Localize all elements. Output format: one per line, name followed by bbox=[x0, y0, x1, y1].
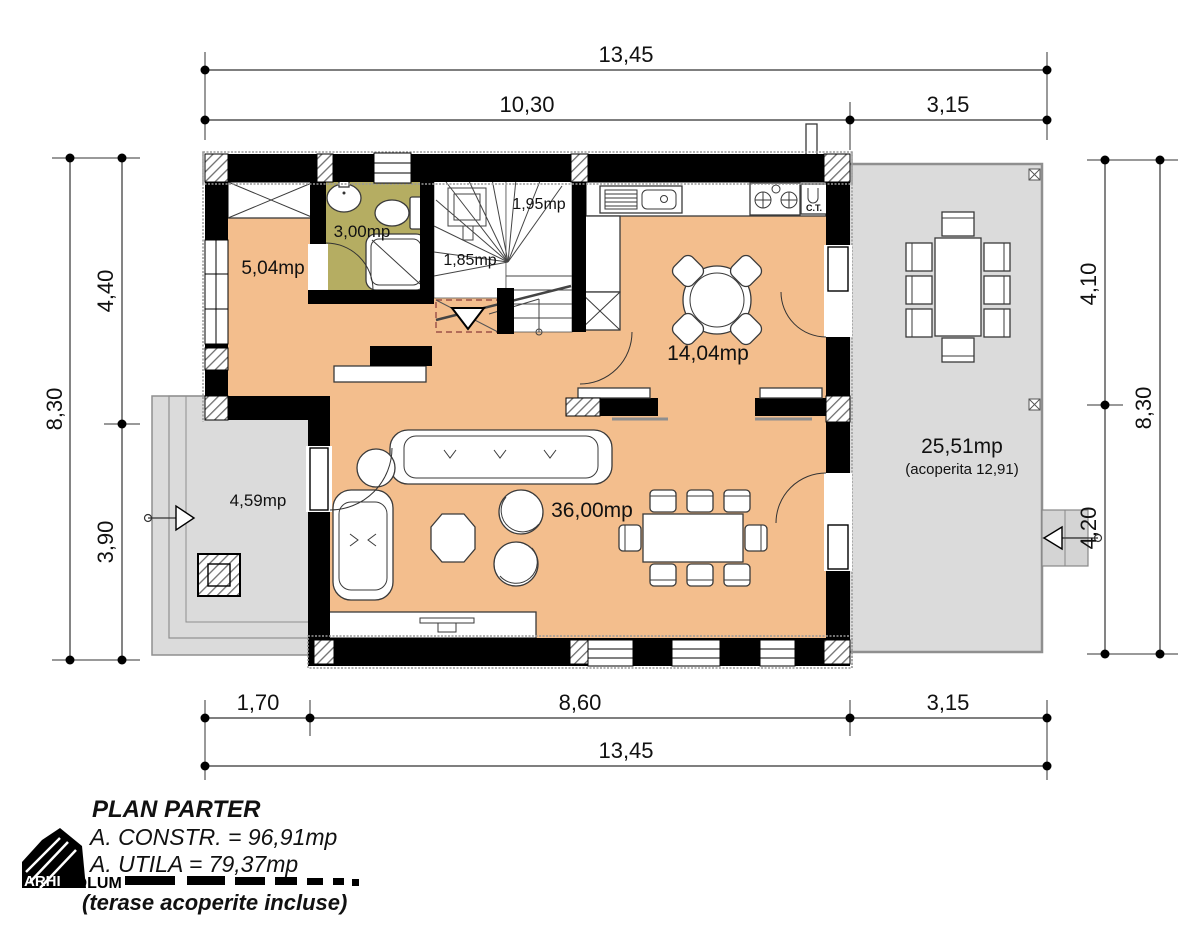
dim-left-upper: 4,40 bbox=[93, 270, 118, 313]
wall-top bbox=[205, 154, 850, 182]
armchair bbox=[494, 542, 538, 586]
bathroom-area-label: 3,00mp bbox=[334, 222, 391, 241]
window-bathroom-top bbox=[374, 153, 411, 183]
wall-bath-stairs bbox=[420, 178, 434, 290]
kitchen-area-label: 14,04mp bbox=[667, 342, 749, 365]
wall-bath-bottom bbox=[308, 290, 434, 304]
corner-marker-icon bbox=[1029, 169, 1040, 180]
dim-top-main: 10,30 bbox=[499, 92, 554, 117]
dimensions-bottom: 1,70 8,60 3,15 13,45 bbox=[201, 690, 1052, 780]
dim-bottom-right: 3,15 bbox=[927, 690, 970, 715]
terrace-right-note-label: (acoperita 12,91) bbox=[905, 461, 1018, 478]
hall-area-label: 5,04mp bbox=[241, 258, 304, 279]
terrace-legend-dashes bbox=[125, 876, 359, 886]
dimensions-right: 4,10 4,20 8,30 bbox=[1076, 156, 1178, 659]
dim-right-total: 8,30 bbox=[1131, 387, 1156, 430]
dim-right-upper: 4,10 bbox=[1076, 263, 1101, 306]
dimensions-top: 13,45 10,30 3,15 bbox=[201, 42, 1052, 150]
window-hall-left bbox=[205, 240, 228, 344]
dim-bottom-total: 13,45 bbox=[598, 738, 653, 763]
stair-lower-area-label: 1,85mp bbox=[443, 252, 496, 269]
wall-stairs-kitchen bbox=[572, 178, 586, 332]
window-living-bottom bbox=[588, 640, 633, 666]
sofa-large bbox=[390, 430, 612, 484]
dim-top-total: 13,45 bbox=[598, 42, 653, 67]
stove-icon bbox=[750, 183, 800, 215]
corner-marker-icon bbox=[1029, 399, 1040, 410]
terrace-right-area-label: 25,51mp bbox=[921, 435, 1003, 458]
terrace-right-slab bbox=[848, 164, 1042, 652]
built-area-text: A. CONSTR. = 96,91mp bbox=[88, 824, 338, 850]
wall-stair-stub bbox=[497, 288, 514, 334]
plan-title: PLAN PARTER bbox=[92, 796, 261, 823]
kitchen-sink-icon bbox=[600, 186, 682, 213]
wall-hall-living bbox=[370, 346, 432, 366]
dim-right-lower: 4,20 bbox=[1076, 507, 1101, 550]
floor-plan-drawing: 25,51mp (acoperita 12,91) 4,59mp bbox=[0, 0, 1200, 930]
terrace-right: 25,51mp (acoperita 12,91) bbox=[848, 164, 1102, 652]
shower-icon bbox=[366, 234, 426, 290]
terrace-column bbox=[198, 554, 240, 596]
living-area-label: 36,00mp bbox=[551, 499, 633, 522]
dim-bottom-main: 8,60 bbox=[559, 690, 602, 715]
dim-left-lower: 3,90 bbox=[93, 521, 118, 564]
armchair bbox=[499, 490, 543, 534]
dim-left-total: 8,30 bbox=[42, 388, 67, 431]
sofa-small bbox=[333, 490, 393, 600]
legend-note-text: (terase acoperite incluse) bbox=[82, 890, 347, 915]
hall-sideboard bbox=[334, 366, 426, 382]
window-living-bottom bbox=[760, 640, 795, 666]
tv-cabinet bbox=[316, 612, 536, 638]
kitchen-table bbox=[670, 253, 765, 348]
chimney bbox=[806, 124, 817, 156]
boiler-label: C.T. bbox=[806, 203, 822, 213]
wall-kitchen-living-right bbox=[755, 398, 826, 416]
dim-bottom-terrace: 1,70 bbox=[237, 690, 280, 715]
wall-hall-bath bbox=[310, 178, 326, 244]
dimensions-left: 8,30 4,40 3,90 bbox=[42, 154, 140, 665]
logo-part1: ARHI bbox=[24, 873, 61, 890]
usable-area-text: A. UTILA = 79,37mp bbox=[88, 851, 298, 877]
stair-upper-area-label: 1,95mp bbox=[512, 196, 565, 213]
legend-block: ARHI VOLUM PLAN PARTER A. CONSTR. = 96,9… bbox=[22, 796, 359, 915]
boiler-unit: C.T. bbox=[801, 184, 828, 214]
coffee-table bbox=[431, 514, 475, 562]
terrace-left: 4,59mp bbox=[145, 396, 311, 655]
dim-top-terrace: 3,15 bbox=[927, 92, 970, 117]
hall-wardrobe bbox=[228, 182, 314, 218]
floor-plan-page: 25,51mp (acoperita 12,91) 4,59mp bbox=[0, 0, 1200, 930]
terrace-left-area-label: 4,59mp bbox=[230, 491, 287, 510]
window-living-bottom bbox=[672, 640, 720, 666]
